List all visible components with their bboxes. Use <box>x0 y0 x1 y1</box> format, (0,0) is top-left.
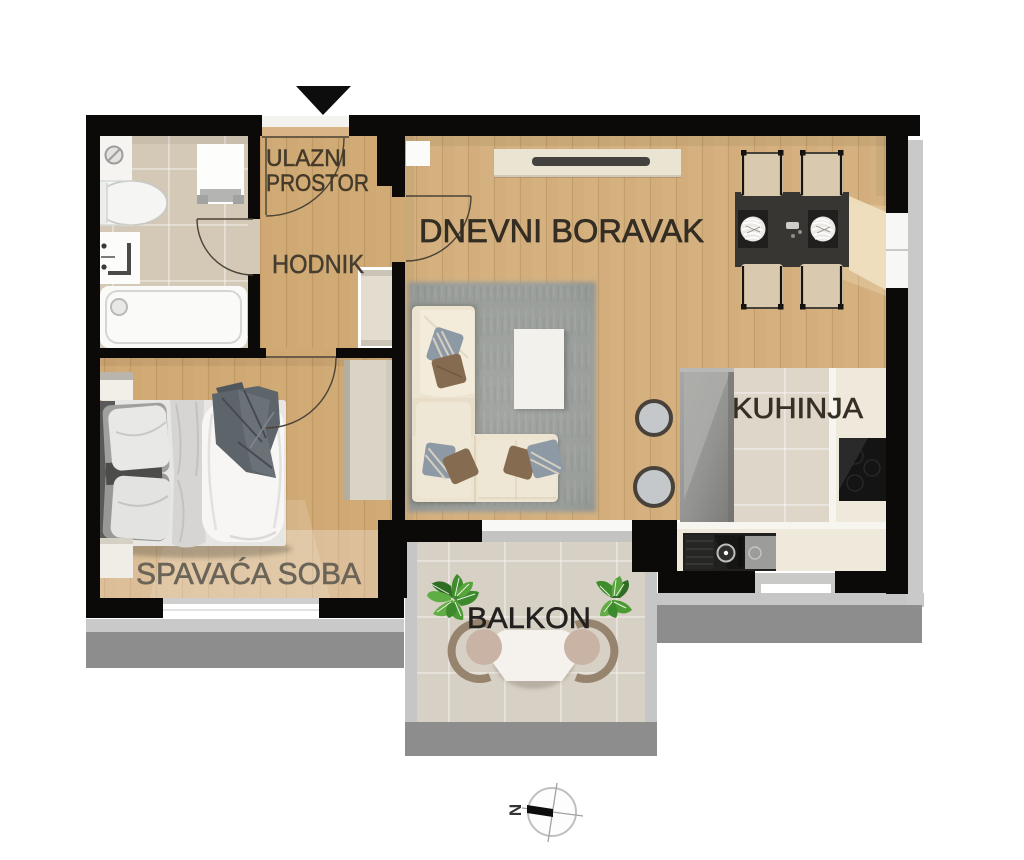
svg-text:KUHINJA: KUHINJA <box>732 393 864 425</box>
svg-text:PROSTOR: PROSTOR <box>266 170 369 197</box>
svg-text:ULAZNI: ULAZNI <box>266 145 347 172</box>
svg-text:HODNIK: HODNIK <box>272 249 365 279</box>
svg-text:N: N <box>506 804 525 816</box>
svg-text:SPAVAĆA SOBA: SPAVAĆA SOBA <box>136 556 361 591</box>
svg-text:BALKON: BALKON <box>467 602 591 635</box>
svg-text:DNEVNI BORAVAK: DNEVNI BORAVAK <box>419 213 704 249</box>
